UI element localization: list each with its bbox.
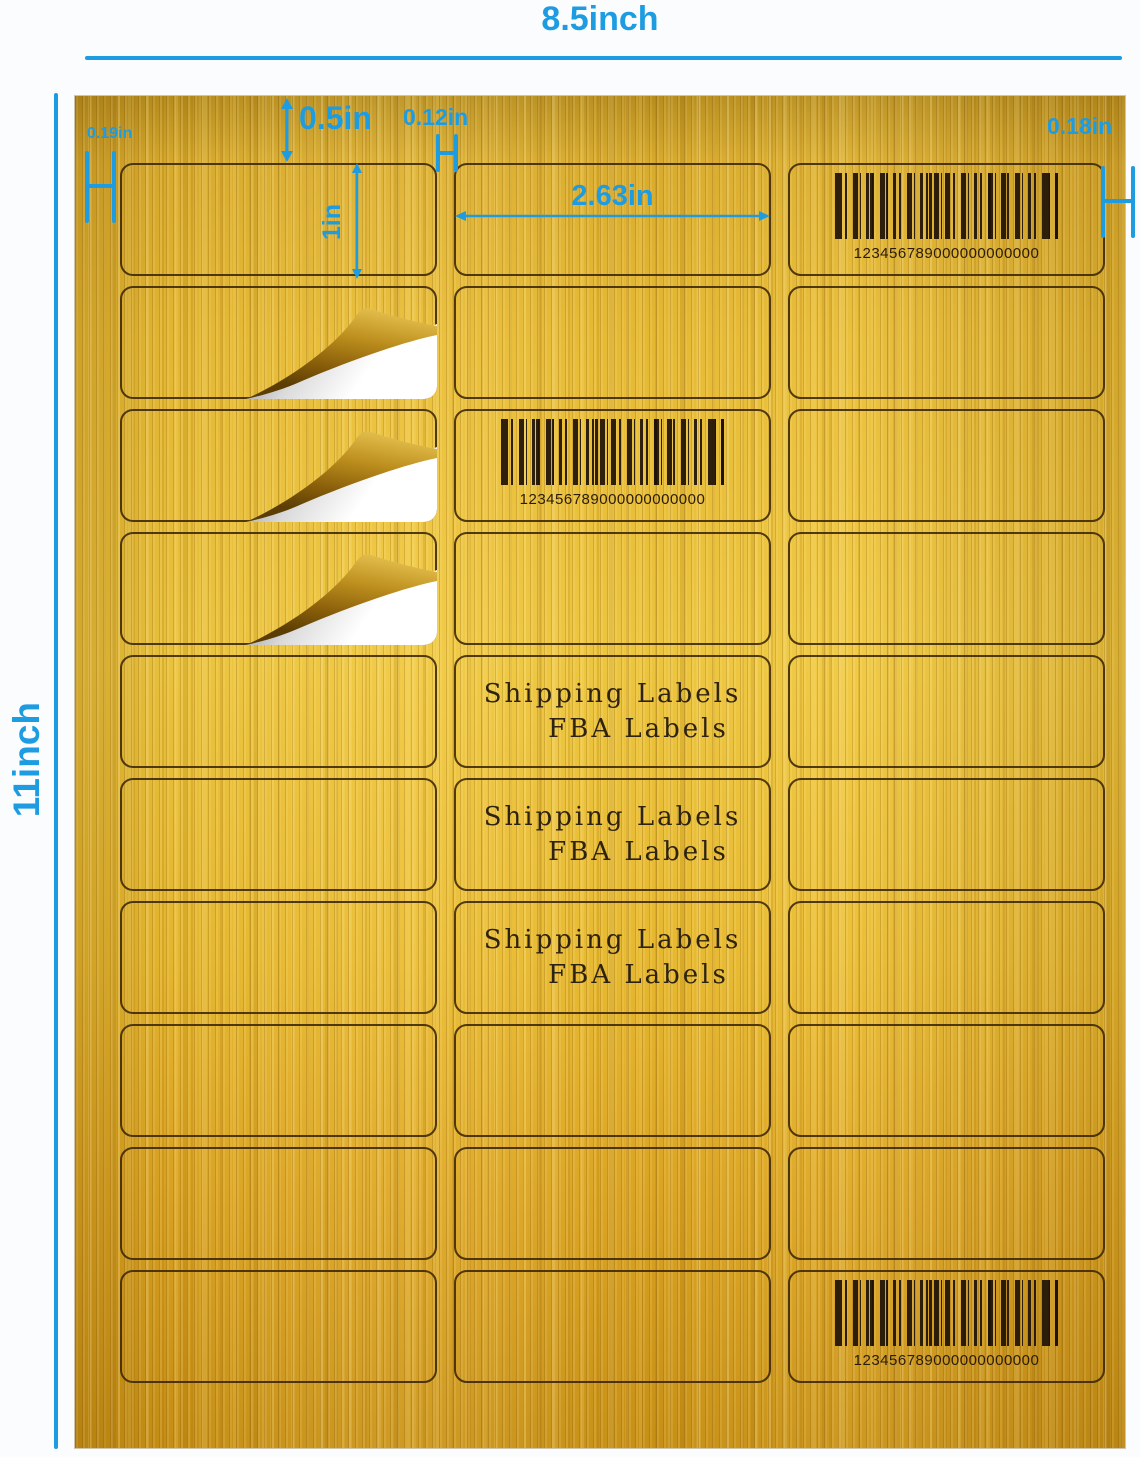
label-cell-r8c3 [788, 1024, 1105, 1137]
fba-labels-text: FBA Labels [548, 836, 729, 869]
barcode-bars [835, 1280, 1058, 1346]
shipping-text-label-r7c2: Shipping Labels FBA Labels [454, 901, 771, 1014]
label-cell-r8c2 [454, 1024, 771, 1137]
label-height-dimension-label: 1in [314, 186, 350, 258]
barcode-digits: 123456789000000000000 [788, 1352, 1105, 1369]
label-cell-r6c1 [120, 778, 437, 891]
label-width-arrow [455, 208, 770, 224]
label-cell-r7c1 [120, 901, 437, 1014]
peel-corner-graphic [120, 532, 437, 645]
label-cell-r5c3 [788, 655, 1105, 768]
barcode-graphic: 123456789000000000000 [788, 163, 1105, 276]
label-height-arrow [349, 163, 365, 279]
label-cell-r2c2 [454, 286, 771, 399]
shipping-labels-text: Shipping Labels [484, 924, 742, 957]
label-cell-r9c1 [120, 1147, 437, 1260]
peeling-label-r2c1 [120, 286, 437, 399]
peeling-label-r4c1 [120, 532, 437, 645]
top-margin-arrow [279, 98, 295, 162]
shipping-text-label-r5c2: Shipping Labels FBA Labels [454, 655, 771, 768]
column-gap-bracket-bar [436, 151, 457, 155]
barcode-digits: 123456789000000000000 [454, 491, 771, 508]
barcode-digits: 123456789000000000000 [788, 245, 1105, 262]
sheet-height-dimension-label: 11inch [4, 650, 50, 870]
sheet-width-dimension-label: 8.5inch [75, 0, 1125, 39]
label-sheet-product-diagram: 8.5inch 11inch 123456789000000000000 123… [0, 0, 1140, 1457]
sheet-width-dimension-line [85, 56, 1122, 60]
right-margin-dimension-label: 0.18in [1047, 113, 1112, 140]
right-margin-bracket-bar [1101, 199, 1135, 203]
label-cell-r4c2 [454, 532, 771, 645]
label-cell-r1c1 [120, 163, 437, 276]
shipping-labels-text: Shipping Labels [484, 678, 742, 711]
barcode-label-r1c3: 123456789000000000000 [788, 163, 1105, 276]
barcode-label-r10c3: 123456789000000000000 [788, 1270, 1105, 1383]
barcode-label-r3c2: 123456789000000000000 [454, 409, 771, 522]
label-cell-r4c3 [788, 532, 1105, 645]
peel-corner-graphic [120, 409, 437, 522]
label-cell-r7c3 [788, 901, 1105, 1014]
sheet-height-dimension-line [54, 93, 58, 1449]
barcode-graphic: 123456789000000000000 [454, 409, 771, 522]
top-margin-dimension-label: 0.5in [299, 100, 372, 137]
left-margin-bracket-bar [85, 184, 116, 188]
left-margin-dimension-label: 0.19in [87, 125, 132, 143]
label-cell-r9c2 [454, 1147, 771, 1260]
shipping-text-label-r6c2: Shipping Labels FBA Labels [454, 778, 771, 891]
shipping-labels-text: Shipping Labels [484, 801, 742, 834]
label-cell-r3c3 [788, 409, 1105, 522]
peel-corner-graphic [120, 286, 437, 399]
label-cell-r8c1 [120, 1024, 437, 1137]
label-cell-r2c3 [788, 286, 1105, 399]
label-cell-r6c3 [788, 778, 1105, 891]
barcode-bars [835, 173, 1058, 239]
barcode-bars [501, 419, 724, 485]
column-gap-dimension-label: 0.12in [403, 104, 468, 131]
label-cell-r10c1 [120, 1270, 437, 1383]
label-cell-r10c2 [454, 1270, 771, 1383]
gold-label-sheet: 123456789000000000000 123456789000000000… [75, 96, 1125, 1448]
fba-labels-text: FBA Labels [548, 959, 729, 992]
barcode-graphic: 123456789000000000000 [788, 1270, 1105, 1383]
label-cell-r9c3 [788, 1147, 1105, 1260]
peeling-label-r3c1 [120, 409, 437, 522]
fba-labels-text: FBA Labels [548, 713, 729, 746]
label-cell-r5c1 [120, 655, 437, 768]
